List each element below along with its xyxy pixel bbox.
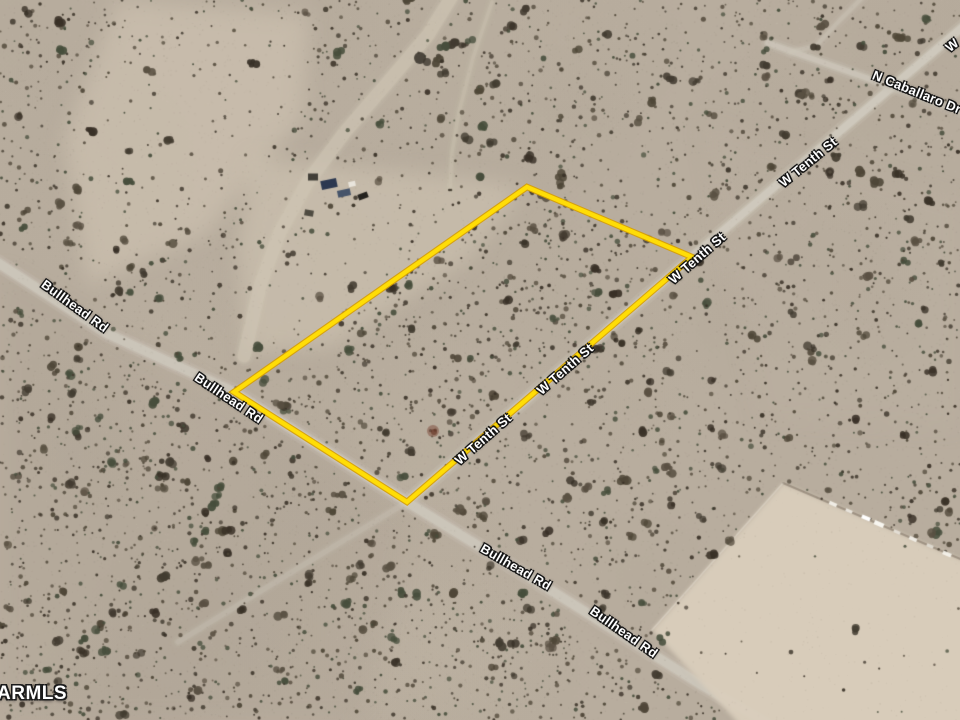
aerial-parcel-map-image[interactable]: Bullhead RdBullhead RdBullhead RdBullhea… [0, 0, 960, 720]
satellite-imagery-canvas [0, 0, 960, 720]
mls-watermark: ARMLS [0, 684, 67, 703]
